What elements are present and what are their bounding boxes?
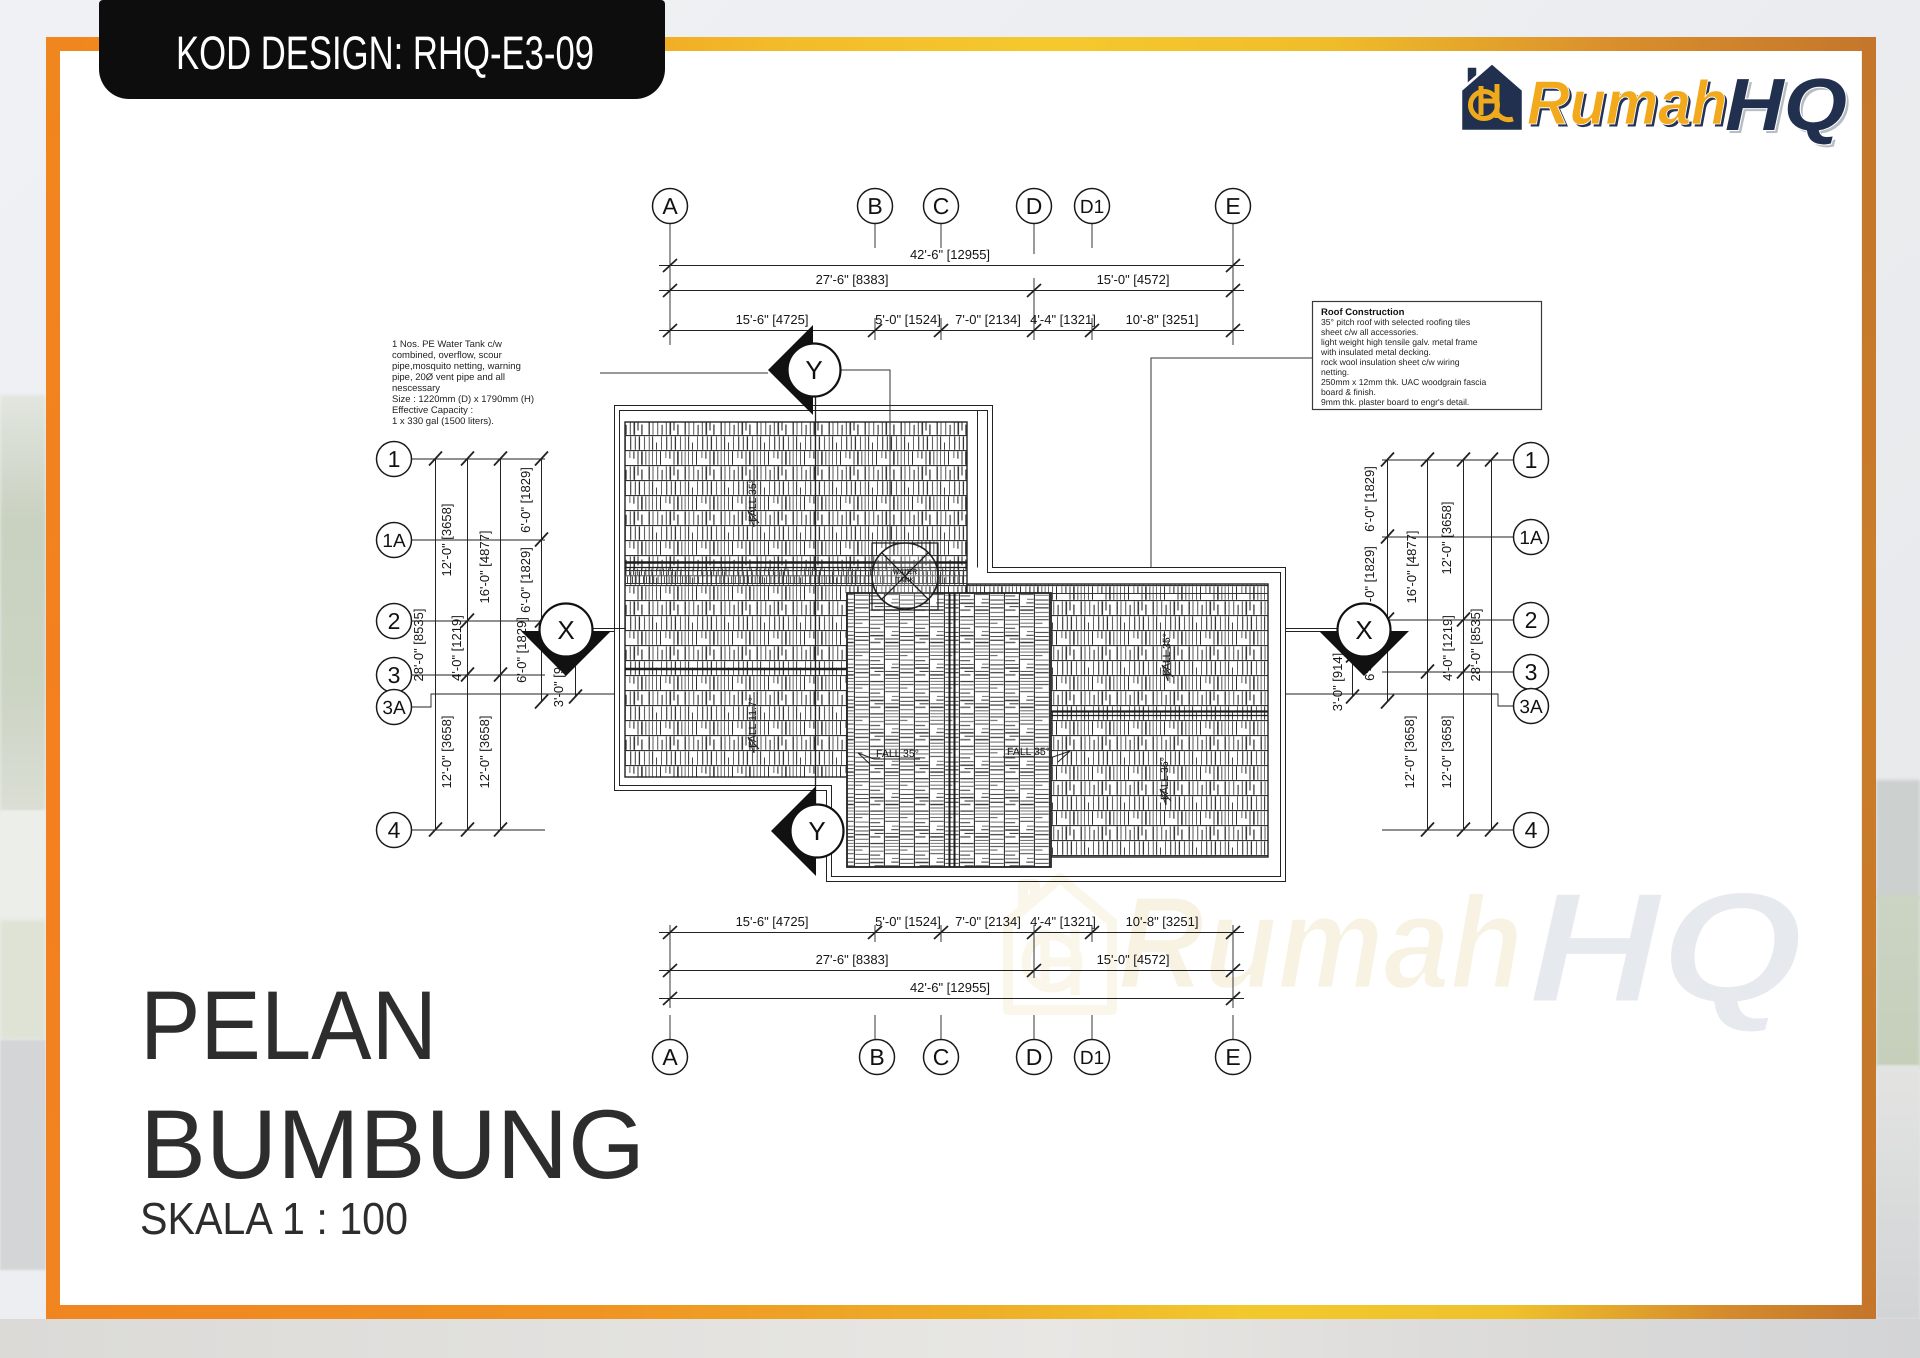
svg-text:light weight high tensile galv: light weight high tensile galv. metal fr… [1321, 337, 1478, 347]
svg-text:4'-4" [1321]: 4'-4" [1321] [1030, 312, 1096, 327]
svg-text:4: 4 [388, 817, 401, 843]
svg-text:E: E [1225, 1044, 1240, 1070]
svg-text:sheet c/w all accessories.: sheet c/w all accessories. [1321, 327, 1418, 337]
svg-text:PELAN: PELAN [140, 970, 437, 1080]
svg-text:3A: 3A [1519, 697, 1543, 718]
svg-text:X: X [557, 615, 574, 645]
svg-text:D: D [1026, 1044, 1043, 1070]
svg-text:5'-0" [1524]: 5'-0" [1524] [875, 312, 941, 327]
svg-text:4'-4" [1321]: 4'-4" [1321] [1030, 914, 1096, 929]
svg-text:6'-0" [1829]: 6'-0" [1829] [1362, 466, 1377, 532]
svg-text:KOD DESIGN: RHQ-E3-09: KOD DESIGN: RHQ-E3-09 [176, 26, 594, 79]
svg-text:1 Nos. PE Water Tank c/w: 1 Nos. PE Water Tank c/w [392, 339, 502, 350]
svg-text:rock wool insulation sheet c/w: rock wool insulation sheet c/w wiring [1321, 357, 1460, 367]
svg-text:D: D [1026, 193, 1043, 219]
svg-text:6'-0" [1829]: 6'-0" [1829] [518, 467, 533, 533]
svg-text:Y: Y [808, 816, 825, 846]
svg-text:with insulated metal decking.: with insulated metal decking. [1320, 347, 1431, 357]
svg-text:10'-8" [3251]: 10'-8" [3251] [1126, 914, 1199, 929]
svg-text:FALL 35°: FALL 35° [1007, 746, 1050, 758]
svg-text:1 x 330 gal (1500 liters).: 1 x 330 gal (1500 liters). [392, 416, 494, 427]
svg-text:27'-6" [8383]: 27'-6" [8383] [816, 952, 889, 967]
svg-text:TANK: TANK [896, 577, 914, 584]
svg-text:D1: D1 [1080, 197, 1104, 218]
svg-text:42'-6" [12955]: 42'-6" [12955] [910, 247, 990, 262]
svg-text:board & finish.: board & finish. [1321, 387, 1376, 397]
svg-text:1: 1 [1525, 447, 1538, 473]
svg-text:7'-0" [2134]: 7'-0" [2134] [955, 312, 1021, 327]
svg-text:1: 1 [388, 446, 401, 472]
svg-text:1A: 1A [1519, 528, 1543, 549]
svg-text:HQ: HQ [1725, 63, 1847, 146]
svg-text:15'-0" [4572]: 15'-0" [4572] [1097, 272, 1170, 287]
svg-text:FALL 35°: FALL 35° [876, 748, 919, 760]
svg-text:SKALA 1 : 100: SKALA 1 : 100 [140, 1193, 408, 1244]
svg-text:9mm thk. plaster board to engr: 9mm thk. plaster board to engr's detail. [1321, 397, 1469, 407]
svg-text:combined, overflow, scour: combined, overflow, scour [392, 350, 502, 361]
svg-text:4'-0" [1219]: 4'-0" [1219] [1440, 615, 1455, 681]
svg-text:42'-6" [12955]: 42'-6" [12955] [910, 980, 990, 995]
svg-text:4'-0" [1219]: 4'-0" [1219] [449, 615, 464, 681]
svg-text:FALL 35°: FALL 35° [1159, 757, 1171, 800]
svg-text:pipe,mosquito netting, warning: pipe,mosquito netting, warning [392, 361, 521, 372]
svg-text:A: A [662, 193, 678, 219]
svg-text:28'-0" [8535]: 28'-0" [8535] [411, 609, 426, 682]
svg-text:15'-0" [4572]: 15'-0" [4572] [1097, 952, 1170, 967]
svg-text:3: 3 [1525, 659, 1538, 685]
svg-text:12'-0" [3658]: 12'-0" [3658] [477, 716, 492, 789]
svg-text:BUMBUNG: BUMBUNG [140, 1089, 645, 1199]
svg-text:Rumah: Rumah [1118, 869, 1523, 1016]
svg-text:12'-0" [3658]: 12'-0" [3658] [1439, 716, 1454, 789]
svg-text:12'-0" [3658]: 12'-0" [3658] [1402, 716, 1417, 789]
svg-text:FALL 35°: FALL 35° [747, 479, 759, 522]
svg-text:D1: D1 [1080, 1048, 1104, 1069]
svg-text:16'-0" [4877]: 16'-0" [4877] [1404, 531, 1419, 604]
svg-text:1A: 1A [382, 531, 406, 552]
svg-text:5'-0" [1524]: 5'-0" [1524] [875, 914, 941, 929]
svg-text:3A: 3A [382, 698, 406, 719]
svg-text:pipe, 20Ø vent pipe and all: pipe, 20Ø vent pipe and all [392, 372, 505, 383]
svg-text:6'-0" [1829]: 6'-0" [1829] [514, 617, 529, 683]
svg-text:C: C [933, 1044, 950, 1070]
svg-text:27'-6" [8383]: 27'-6" [8383] [816, 272, 889, 287]
svg-text:A: A [662, 1044, 678, 1070]
svg-text:12'-0" [3658]: 12'-0" [3658] [439, 716, 454, 789]
svg-text:HQ: HQ [1528, 860, 1803, 1036]
svg-text:nescessary: nescessary [392, 383, 440, 394]
svg-text:10'-8" [3251]: 10'-8" [3251] [1126, 312, 1199, 327]
svg-text:28'-0" [8535]: 28'-0" [8535] [1468, 609, 1483, 682]
svg-text:15'-6" [4725]: 15'-6" [4725] [736, 312, 809, 327]
svg-text:B: B [867, 193, 882, 219]
svg-text:7'-0" [2134]: 7'-0" [2134] [955, 914, 1021, 929]
svg-text:C: C [933, 193, 950, 219]
svg-text:B: B [869, 1044, 884, 1070]
svg-text:6'-0" [1829]: 6'-0" [1829] [1362, 546, 1377, 612]
svg-text:12'-0" [3658]: 12'-0" [3658] [1439, 502, 1454, 575]
svg-text:6'-0" [1829]: 6'-0" [1829] [518, 547, 533, 613]
svg-text:Rumah: Rumah [1527, 69, 1727, 138]
svg-text:E: E [1225, 193, 1240, 219]
svg-text:WATER: WATER [893, 569, 918, 576]
svg-text:4: 4 [1525, 817, 1538, 843]
svg-text:3'-0" [914]: 3'-0" [914] [1330, 653, 1345, 711]
svg-text:35° pitch roof with selected: 35° pitch roof with selected roofing til… [1321, 317, 1470, 327]
svg-text:15'-6" [4725]: 15'-6" [4725] [736, 914, 809, 929]
svg-text:Y: Y [805, 355, 822, 385]
svg-text:netting.: netting. [1321, 367, 1349, 377]
svg-text:X: X [1355, 615, 1372, 645]
svg-text:250mm x 12mm thk. UAC woodgrai: 250mm x 12mm thk. UAC woodgrain fascia [1321, 377, 1486, 387]
svg-text:Effective Capacity :: Effective Capacity : [392, 405, 473, 416]
svg-text:3: 3 [388, 662, 401, 688]
svg-text:2: 2 [1525, 607, 1538, 633]
svg-text:12'-0" [3658]: 12'-0" [3658] [439, 504, 454, 577]
svg-text:Size : 1220mm (D) x 1790mm (H): Size : 1220mm (D) x 1790mm (H) [392, 394, 534, 405]
svg-text:16'-0" [4877]: 16'-0" [4877] [477, 531, 492, 604]
svg-text:2: 2 [388, 608, 401, 634]
svg-text:FALL 35°: FALL 35° [1161, 633, 1173, 676]
